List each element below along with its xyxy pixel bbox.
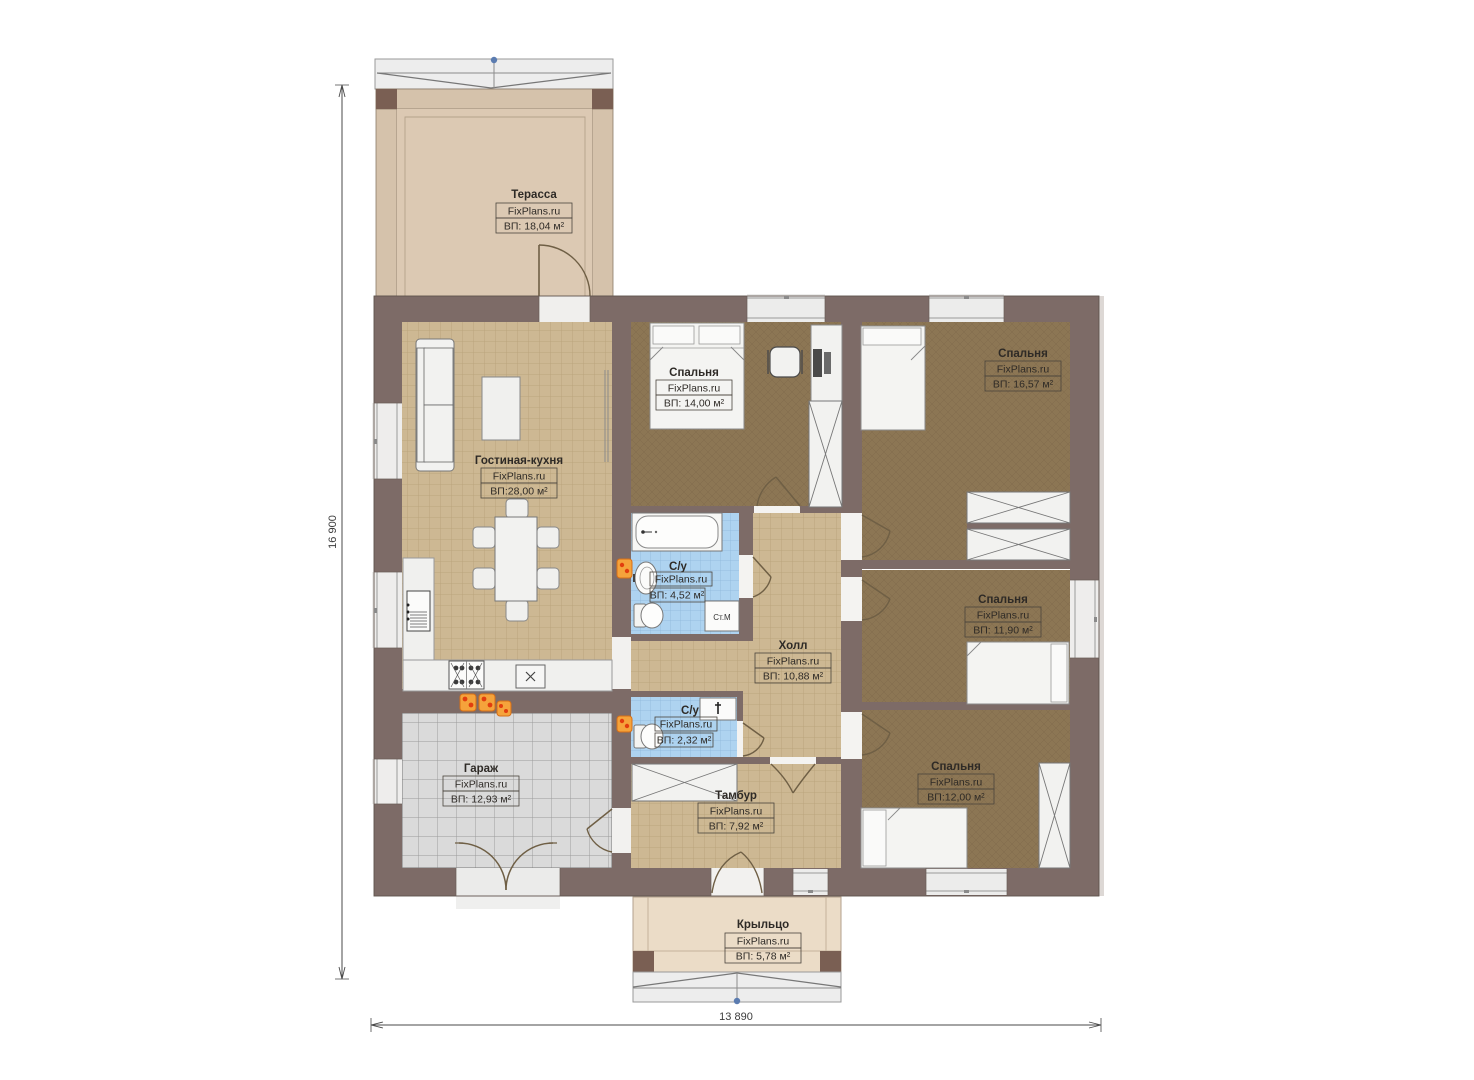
svg-text:Спальня: Спальня (669, 367, 719, 379)
svg-text:FixPlans.ru: FixPlans.ru (455, 779, 508, 791)
svg-text:Ст.М: Ст.М (713, 613, 731, 622)
svg-text:ВП: 2,32 м²: ВП: 2,32 м² (657, 735, 712, 747)
svg-text:С/у: С/у (669, 561, 688, 573)
svg-text:FixPlans.ru: FixPlans.ru (655, 574, 708, 586)
svg-text:С/у: С/у (681, 705, 700, 717)
svg-text:FixPlans.ru: FixPlans.ru (493, 471, 546, 483)
svg-text:Спальня: Спальня (998, 348, 1048, 360)
svg-text:FixPlans.ru: FixPlans.ru (977, 610, 1030, 622)
svg-text:13 890: 13 890 (719, 1011, 753, 1023)
svg-text:Спальня: Спальня (931, 761, 981, 773)
svg-text:ВП: 18,04 м²: ВП: 18,04 м² (504, 221, 565, 233)
svg-text:ВП:12,00 м²: ВП:12,00 м² (927, 792, 985, 804)
svg-text:Гостиная-кухня: Гостиная-кухня (475, 455, 563, 467)
svg-text:Крыльцо: Крыльцо (737, 919, 789, 931)
svg-text:Гараж: Гараж (464, 763, 499, 775)
svg-text:Спальня: Спальня (978, 594, 1028, 606)
svg-text:Холл: Холл (779, 640, 808, 652)
svg-text:ВП: 10,88 м²: ВП: 10,88 м² (763, 671, 824, 683)
svg-text:FixPlans.ru: FixPlans.ru (737, 936, 790, 948)
svg-text:FixPlans.ru: FixPlans.ru (997, 364, 1050, 376)
svg-text:ВП: 7,92 м²: ВП: 7,92 м² (709, 821, 764, 833)
svg-text:FixPlans.ru: FixPlans.ru (767, 656, 820, 668)
svg-text:FixPlans.ru: FixPlans.ru (660, 719, 713, 731)
svg-text:ВП:28,00 м²: ВП:28,00 м² (490, 486, 548, 498)
svg-text:FixPlans.ru: FixPlans.ru (930, 777, 983, 789)
svg-text:ВП: 5,78 м²: ВП: 5,78 м² (736, 951, 791, 963)
svg-text:ВП: 16,57 м²: ВП: 16,57 м² (993, 379, 1054, 391)
svg-text:ВП: 11,90 м²: ВП: 11,90 м² (973, 625, 1033, 637)
svg-text:FixPlans.ru: FixPlans.ru (668, 383, 721, 395)
svg-text:Тамбур: Тамбур (715, 790, 757, 802)
svg-text:ВП: 12,93 м²: ВП: 12,93 м² (451, 794, 512, 806)
svg-text:16 900: 16 900 (327, 515, 339, 549)
svg-text:FixPlans.ru: FixPlans.ru (508, 206, 561, 218)
svg-text:ВП: 4,52 м²: ВП: 4,52 м² (650, 590, 705, 602)
svg-text:Терасса: Терасса (511, 189, 557, 201)
svg-text:FixPlans.ru: FixPlans.ru (710, 806, 763, 818)
svg-text:ВП: 14,00 м²: ВП: 14,00 м² (664, 398, 725, 410)
